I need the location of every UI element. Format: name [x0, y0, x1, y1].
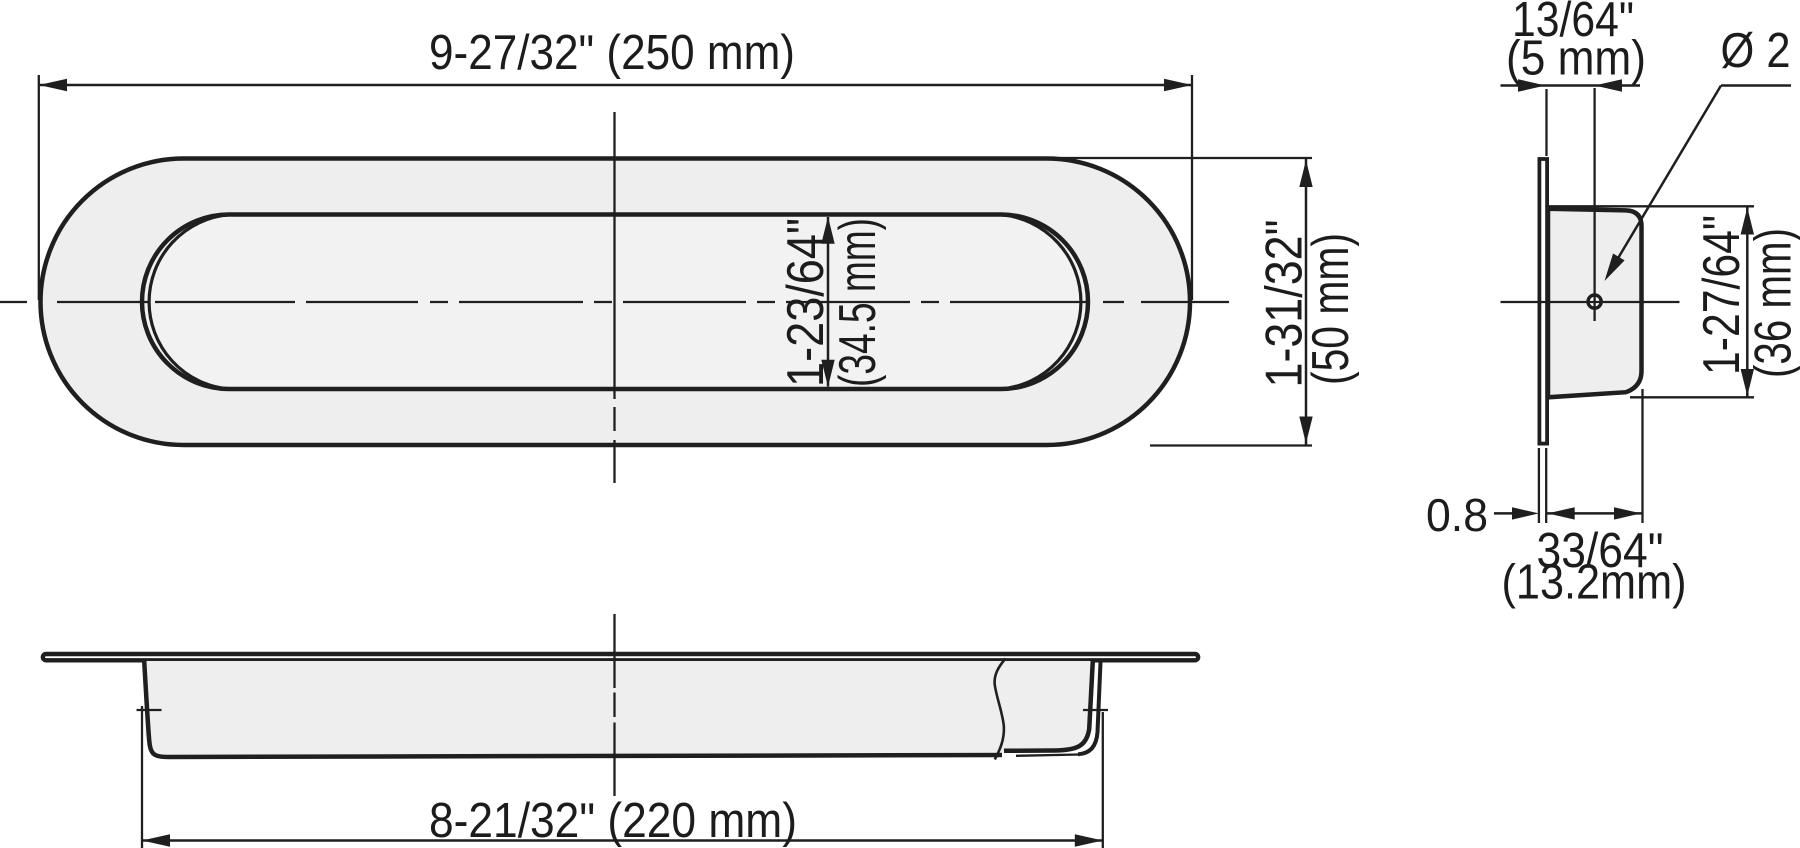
svg-text:1-23/64": 1-23/64" — [777, 218, 835, 387]
svg-text:(5 mm): (5 mm) — [1506, 32, 1646, 86]
svg-text:Ø 2: Ø 2 — [1721, 24, 1791, 78]
svg-text:8-21/32" (220 mm): 8-21/32" (220 mm) — [429, 794, 797, 848]
svg-text:(36 mm): (36 mm) — [1745, 228, 1800, 378]
svg-text:(34.5 mm): (34.5 mm) — [829, 218, 887, 387]
svg-text:9-27/32" (250 mm): 9-27/32" (250 mm) — [429, 26, 795, 80]
svg-text:(50 mm): (50 mm) — [1302, 233, 1360, 385]
svg-text:(13.2mm): (13.2mm) — [1502, 556, 1687, 610]
svg-text:0.8: 0.8 — [1426, 489, 1488, 541]
svg-text:1-27/64": 1-27/64" — [1693, 215, 1751, 375]
